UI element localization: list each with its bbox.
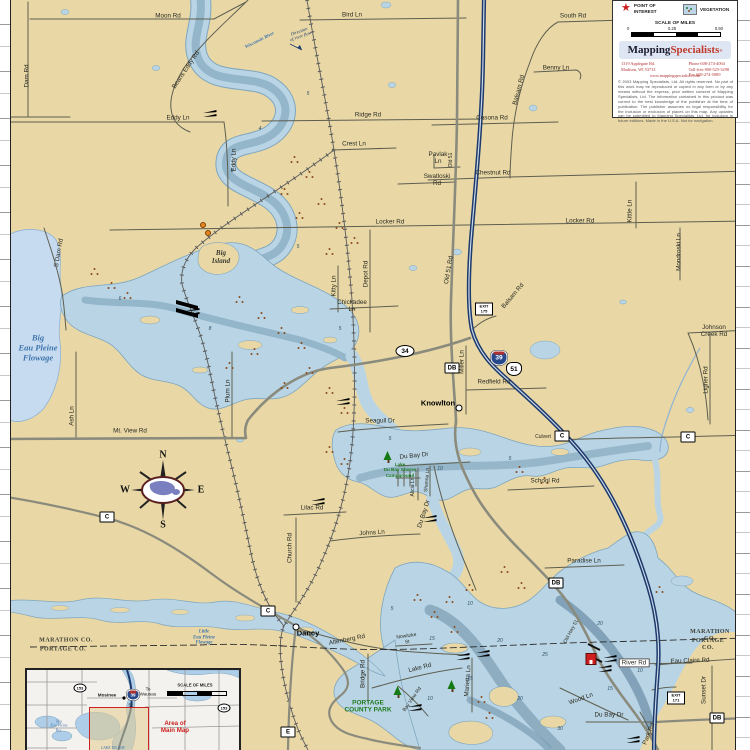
vegetation-icon <box>683 4 697 15</box>
vegetation-label: VEGETATION <box>700 7 729 12</box>
scale-bar <box>631 32 721 37</box>
scale-tick-050: 0.50 <box>715 26 723 31</box>
inset-area-label: Area of Main Map <box>161 720 189 734</box>
vegetation-cluster-icon <box>336 222 345 230</box>
vegetation-cluster-icon <box>306 171 315 179</box>
vegetation-cluster-icon <box>226 362 235 370</box>
publisher-website: www.mappingspecialists.com <box>613 73 737 78</box>
vegetation-cluster-icon <box>91 268 100 276</box>
logo-part2: Specialists <box>670 44 719 56</box>
boat-landing-icon <box>204 110 217 118</box>
vegetation-cluster-icon <box>541 477 550 485</box>
vegetation-cluster-icon <box>108 282 117 290</box>
inset-to-wausau: To Wausau <box>140 687 157 698</box>
orange-marker-icon <box>200 222 206 228</box>
legend-point-of-interest: ★ POINT OF INTEREST <box>621 3 657 14</box>
vegetation-cluster-icon <box>341 458 350 466</box>
vegetation-cluster-icon <box>466 584 475 592</box>
area-of-main-map-rect <box>89 707 149 750</box>
logo-part1: Mapping <box>628 44 671 56</box>
vegetation-cluster-icon <box>451 626 460 634</box>
tree-icon <box>394 686 403 697</box>
inset-mosinee: Mosinee <box>98 692 116 697</box>
vegetation-cluster-icon <box>296 212 305 220</box>
legend-box: ★ POINT OF INTEREST VEGETATION SCALE OF … <box>612 0 738 118</box>
vegetation-cluster-icon <box>298 342 307 350</box>
vegetation-cluster-icon <box>236 296 245 304</box>
tree-icon <box>448 680 457 691</box>
point-of-interest-icon: ★ <box>621 3 631 14</box>
boat-landing-icon <box>312 498 325 506</box>
vegetation-cluster-icon <box>431 611 440 619</box>
inset-hwy51: 51 <box>128 702 133 707</box>
boat-landing-icon <box>337 398 350 406</box>
orange-marker-icon <box>205 230 211 236</box>
boat-landing-icon <box>599 665 612 673</box>
scale-tick-0: 0 <box>627 26 629 31</box>
legend-vegetation: VEGETATION <box>683 4 729 15</box>
scale-ticks: 0 0.25 0.50 <box>627 26 723 31</box>
logo-registered-mark: ® <box>719 48 722 53</box>
vegetation-cluster-icon <box>326 387 335 395</box>
vegetation-cluster-icon <box>446 596 455 604</box>
vegetation-cluster-icon <box>306 367 315 375</box>
mapping-specialists-logo: MappingSpecialists® <box>619 41 731 59</box>
vegetation-cluster-icon <box>486 712 495 720</box>
vegetation-cluster-icon <box>318 198 327 206</box>
big-island-land <box>198 243 239 275</box>
vegetation-cluster-icon <box>341 407 350 415</box>
vegetation-cluster-icon <box>501 566 510 574</box>
vegetation-cluster-icon <box>656 586 665 594</box>
inset-scale-bar <box>167 691 227 696</box>
copyright-text: © 2003 Mapping Specialists, Ltd. All rig… <box>618 80 733 124</box>
vegetation-cluster-icon <box>516 466 525 474</box>
poi-building-bridge <box>586 653 597 665</box>
boat-landing-icon <box>424 515 437 523</box>
tree-icon <box>384 451 393 462</box>
boat-landing-icon <box>477 650 490 658</box>
vegetation-cluster-icon <box>281 188 290 196</box>
vegetation-cluster-icon <box>258 312 267 320</box>
vegetation-cluster-icon <box>414 594 423 602</box>
inset-scale-title: SCALE OF MILES <box>177 684 212 689</box>
point-of-interest-label: POINT OF INTEREST <box>634 3 657 14</box>
lake-map-poster: Moon RdBird LnSouth RdBenny LnBalsam RdD… <box>0 0 750 750</box>
boat-landing-icon <box>604 655 617 663</box>
boat-landing-icon <box>627 736 640 744</box>
vegetation-cluster-icon <box>518 582 527 590</box>
inset-big-eau-pleine-res: Big Eau Pleine Res. <box>50 719 67 732</box>
inset-lake-du-bay: LAKE DU BAY <box>101 746 125 750</box>
knowlton-dot <box>456 405 463 412</box>
dancy-dot <box>293 624 300 631</box>
vegetation-cluster-icon <box>124 292 133 300</box>
boat-landing-icon <box>409 704 422 712</box>
vegetation-cluster-icon <box>326 248 335 256</box>
vegetation-cluster-icon <box>478 696 487 704</box>
boat-landing-icon <box>187 308 200 316</box>
vegetation-cluster-icon <box>251 348 260 356</box>
vegetation-cluster-icon <box>326 446 335 454</box>
map-border-left <box>0 0 11 750</box>
vegetation-cluster-icon <box>351 237 360 245</box>
vegetation-cluster-icon <box>281 382 290 390</box>
scale-tick-025: 0.25 <box>668 26 676 31</box>
inset-locator-map: SCALE OF MILESMosineeTo Wausau51Area of … <box>25 668 241 750</box>
vegetation-cluster-icon <box>291 156 300 164</box>
boat-landing-icon <box>457 653 470 661</box>
vegetation-cluster-icon <box>278 327 287 335</box>
